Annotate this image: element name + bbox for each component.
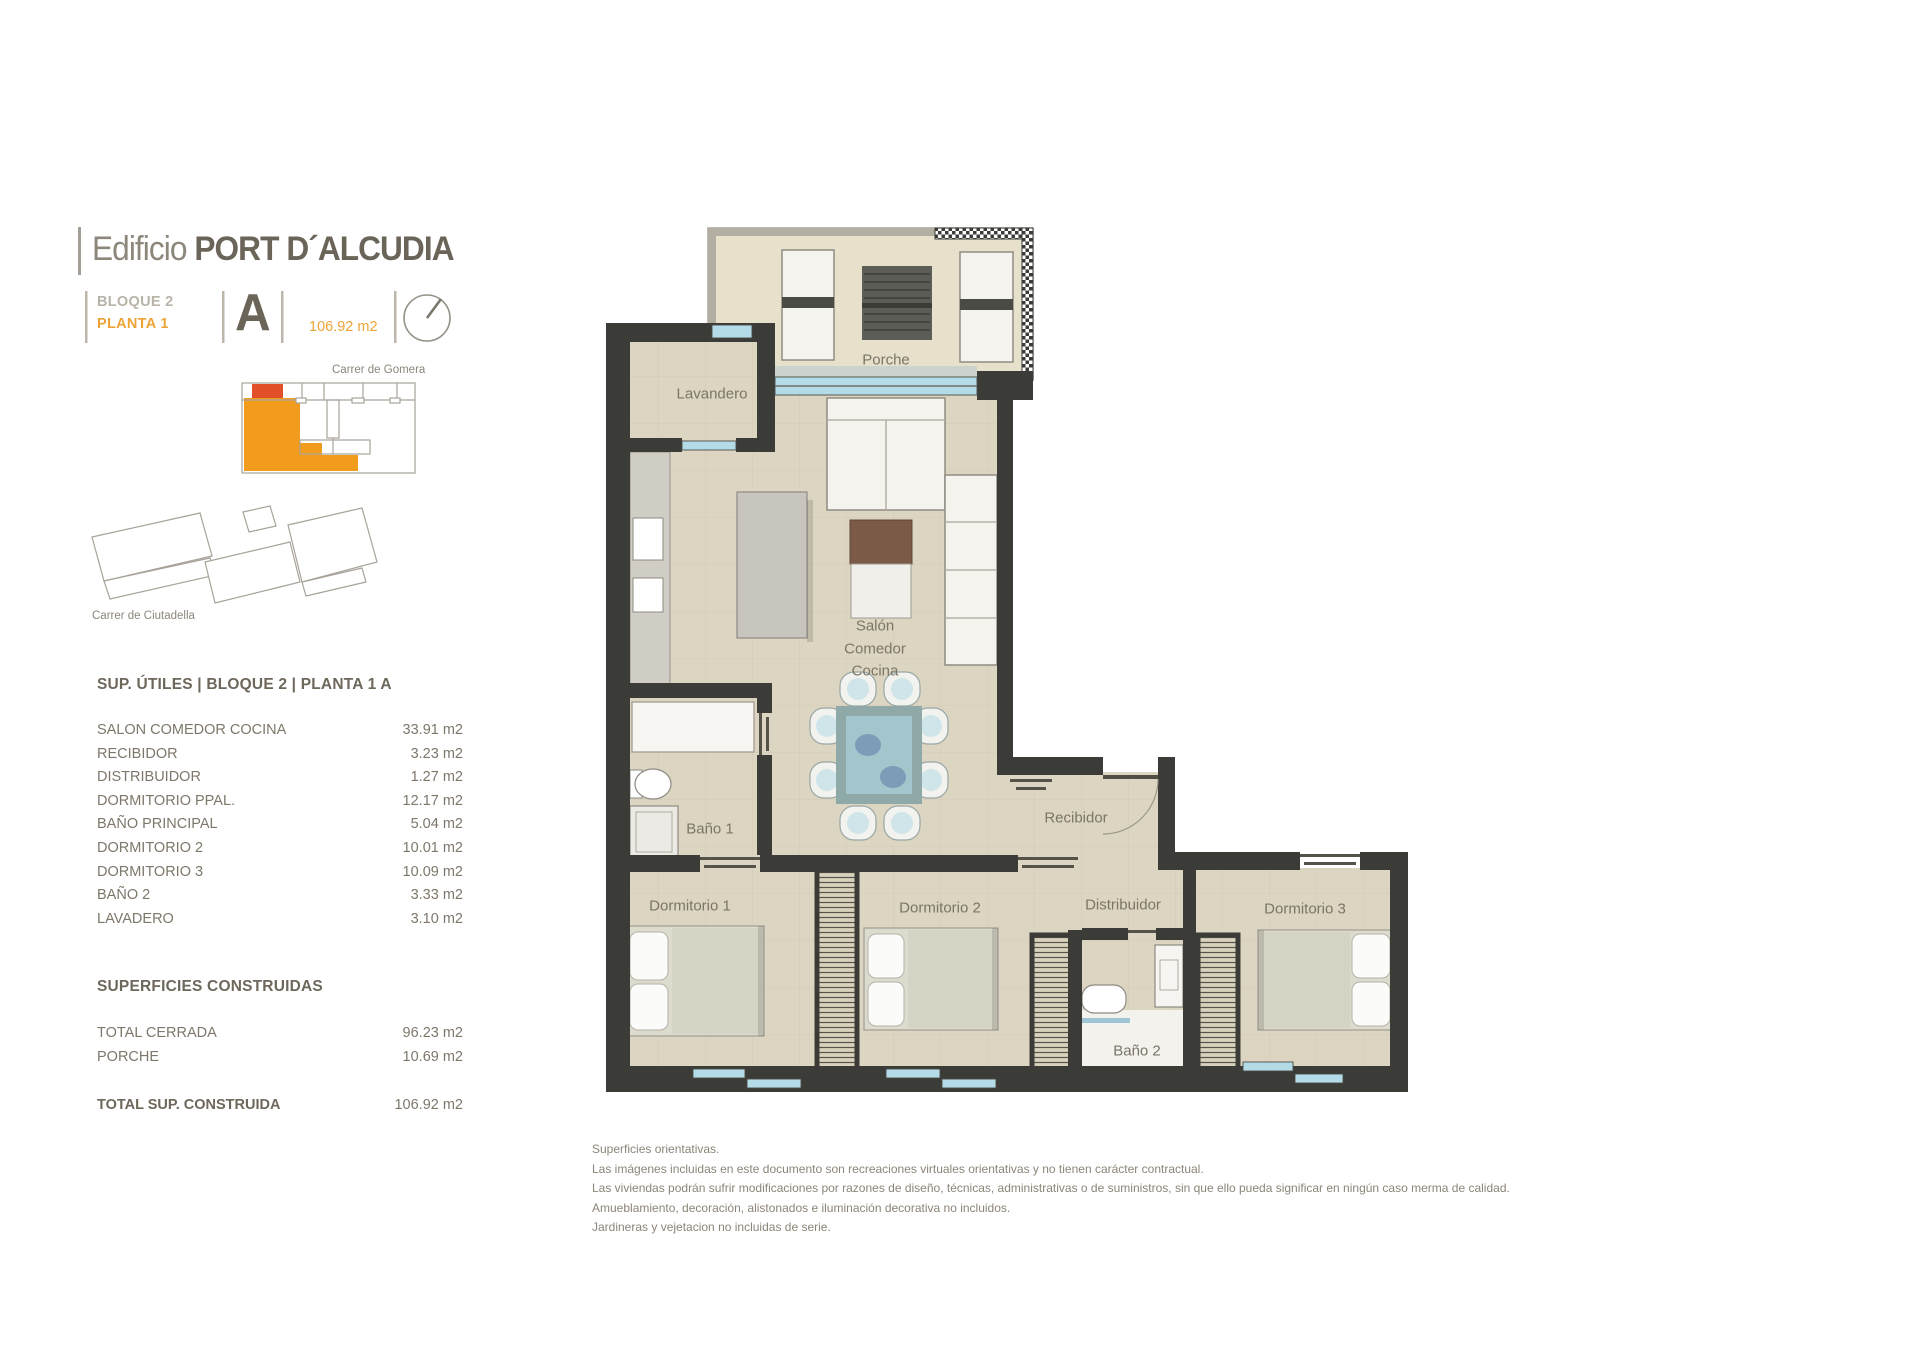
bed-dormitorio3 — [1258, 930, 1394, 1030]
sup-utiles-table: SALON COMEDOR COCINA33.91 m2 RECIBIDOR3.… — [97, 719, 463, 931]
title-prefix: Edificio — [92, 230, 186, 268]
page-title: Edificio PORT D´ALCUDIA — [92, 230, 454, 269]
unit-area: 106.92 m2 — [309, 319, 378, 335]
bed-dormitorio1 — [626, 926, 764, 1036]
disclaimer-line: Las imágenes incluidas en este documento… — [592, 1160, 1510, 1180]
room-label-dormitorio1: Dormitorio 1 — [649, 898, 731, 915]
table-row: DORMITORIO PPAL.12.17 m2 — [97, 790, 463, 814]
street-label-gomera: Carrer de Gomera — [332, 364, 425, 376]
table-row: RECIBIDOR3.23 m2 — [97, 743, 463, 767]
unit-letter: A — [235, 287, 271, 339]
room-label-distribuidor: Distribuidor — [1085, 897, 1161, 914]
bloque-label: BLOQUE 2 — [97, 294, 174, 310]
disclaimer-line: Superficies orientativas. — [592, 1140, 1510, 1160]
total-row: TOTAL SUP. CONSTRUIDA106.92 m2 — [97, 1094, 463, 1118]
room-label-porche: Porche — [862, 352, 910, 369]
room-label-lavandero: Lavandero — [677, 386, 748, 403]
room-label-recibidor: Recibidor — [1044, 810, 1107, 827]
bed-dormitorio2 — [864, 928, 998, 1030]
sup-construidas-heading: SUPERFICIES CONSTRUIDAS — [97, 978, 323, 996]
disclaimer: Superficies orientativas. Las imágenes i… — [592, 1140, 1510, 1238]
block-keyplan — [242, 383, 415, 473]
disclaimer-line: Amueblamiento, decoración, alistonados e… — [592, 1199, 1510, 1219]
street-label-ciutadella: Carrer de Ciutadella — [92, 610, 195, 622]
disclaimer-line: Jardineras y vejetacion no incluidas de … — [592, 1218, 1510, 1238]
room-label-bano2: Baño 2 — [1113, 1043, 1161, 1060]
table-row: LAVADERO3.10 m2 — [97, 908, 463, 932]
north-compass-icon — [404, 295, 450, 341]
brochure-page: { "header": { "title_prefix": "Edificio"… — [0, 0, 1920, 1357]
room-label-dormitorio2: Dormitorio 2 — [899, 900, 981, 917]
room-label-salon-2: Comedor — [844, 641, 906, 658]
shower-screen — [1082, 1018, 1130, 1023]
table-row: PORCHE10.69 m2 — [97, 1046, 463, 1070]
table-row: DORMITORIO 310.09 m2 — [97, 861, 463, 885]
disclaimer-line: Las viviendas podrán sufrir modificacion… — [592, 1179, 1510, 1199]
room-label-bano1: Baño 1 — [686, 821, 734, 838]
room-label-dormitorio3: Dormitorio 3 — [1264, 901, 1346, 918]
room-label-salon-1: Salón — [856, 618, 894, 635]
table-row: SALON COMEDOR COCINA33.91 m2 — [97, 719, 463, 743]
sup-construidas-table: TOTAL CERRADA96.23 m2 PORCHE10.69 m2 — [97, 1022, 463, 1069]
table-row: DISTRIBUIDOR1.27 m2 — [97, 766, 463, 790]
table-row: BAÑO PRINCIPAL5.04 m2 — [97, 813, 463, 837]
table-row: DORMITORIO 210.01 m2 — [97, 837, 463, 861]
room-label-salon-3: Cocina — [852, 663, 899, 680]
title-name: PORT D´ALCUDIA — [194, 230, 453, 268]
table-row-total: TOTAL SUP. CONSTRUIDA106.92 m2 — [97, 1094, 463, 1118]
site-keyplan — [92, 506, 377, 603]
sup-utiles-heading: SUP. ÚTILES | BLOQUE 2 | PLANTA 1 A — [97, 676, 392, 694]
table-row: TOTAL CERRADA96.23 m2 — [97, 1022, 463, 1046]
table-row: BAÑO 23.33 m2 — [97, 884, 463, 908]
planta-label: PLANTA 1 — [97, 316, 169, 332]
